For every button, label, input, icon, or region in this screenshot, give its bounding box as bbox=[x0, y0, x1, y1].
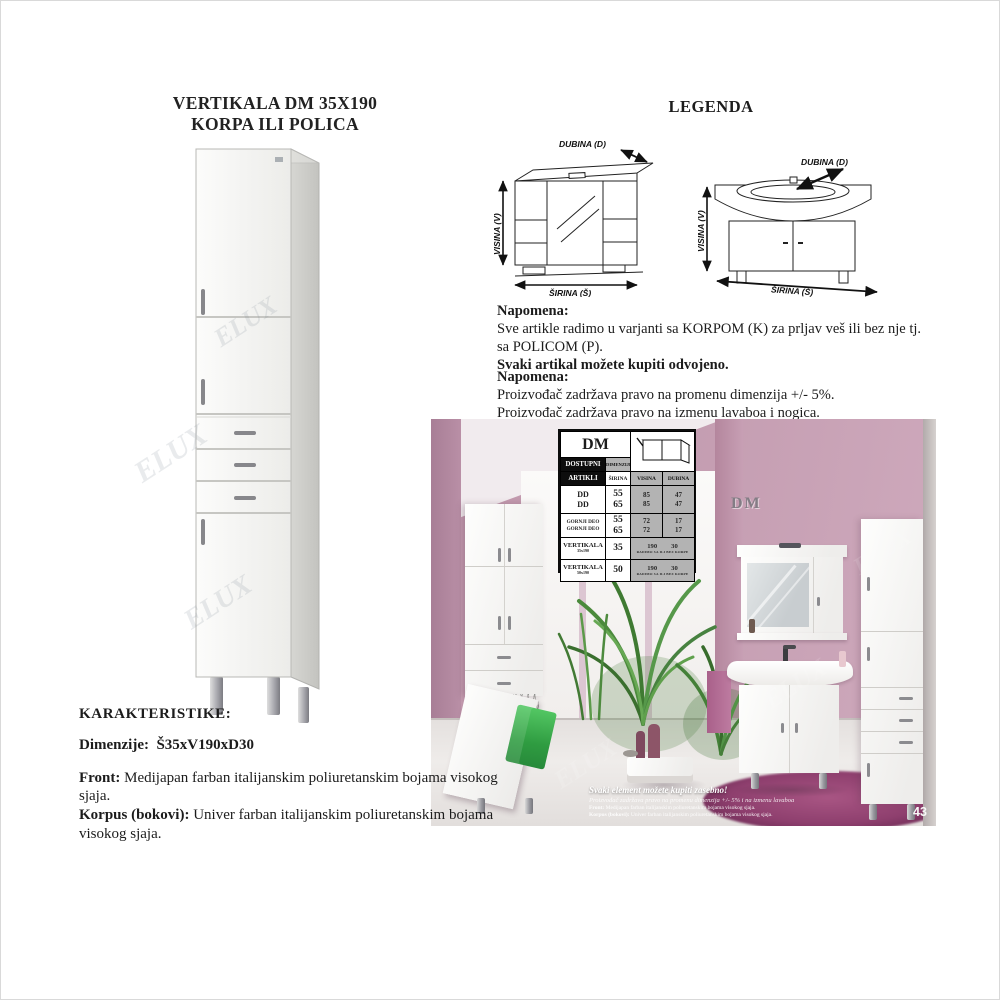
photo-mirror-cabinet bbox=[737, 541, 847, 645]
showroom-photo: DM bbox=[431, 419, 936, 826]
note-heading: Napomena: bbox=[497, 369, 927, 387]
table-title: DM bbox=[561, 432, 631, 458]
dm-dimension-table: DM DOSTUPNI bbox=[558, 429, 696, 573]
cabinet-leg bbox=[869, 804, 877, 820]
svg-text:VISINA (V): VISINA (V) bbox=[696, 210, 706, 252]
col-sirina: ŠIRINA bbox=[606, 472, 631, 486]
caption-sub: Proizvođač zadržava pravo na promenu dim… bbox=[589, 797, 839, 805]
table-row-vertikala: VERTIKALA50x190 50 19030 RADIMO SA ILI B… bbox=[561, 560, 695, 582]
tall-cabinet-drawing bbox=[151, 137, 381, 729]
bottle bbox=[749, 619, 755, 633]
cabinet-leg bbox=[525, 798, 533, 814]
characteristics-heading: KARAKTERISTIKE: bbox=[79, 705, 499, 724]
legend-vanity-diagram: VISINA (V) ŠIRINA (Š) DUBINA (D) bbox=[691, 145, 896, 297]
page-number: 43 bbox=[913, 805, 927, 819]
product-title-line2: KORPA ILI POLICA bbox=[119, 114, 431, 135]
svg-text:DUBINA (D): DUBINA (D) bbox=[801, 157, 848, 167]
photo-caption: Svaki element možete kupiti zasebno! Pro… bbox=[589, 785, 839, 819]
product-title: VERTIKALA DM 35X190 KORPA ILI POLICA bbox=[119, 93, 431, 136]
bowl bbox=[623, 750, 638, 757]
wall-logo: DM bbox=[731, 495, 762, 513]
product-title-line1: VERTIKALA DM 35X190 bbox=[119, 93, 431, 114]
col-dubina: DUBINA bbox=[663, 472, 695, 486]
note-line: Proizvođač zadržava pravo na promenu dim… bbox=[497, 387, 927, 405]
legend-mirror-diagram: VISINA (V) ŠIRINA (Š) DUBINA (D) bbox=[487, 123, 677, 297]
catalog-page: VERTIKALA DM 35X190 KORPA ILI POLICA bbox=[0, 0, 1000, 1000]
table-row: GORNJI DEOGORNJI DEO 5565 7272 1717 bbox=[561, 514, 695, 538]
sink-basin bbox=[727, 661, 853, 687]
legend-heading: LEGENDA bbox=[641, 97, 781, 117]
note-heading: Napomena: bbox=[497, 303, 927, 321]
note-line: sa POLICOM (P). bbox=[497, 339, 927, 357]
vase bbox=[648, 724, 660, 758]
photo-right-cabinet bbox=[859, 519, 927, 819]
note-line: Sve artikle radimo u varjanti sa KORPOM … bbox=[497, 321, 927, 339]
svg-text:VISINA (V): VISINA (V) bbox=[492, 213, 502, 255]
bench bbox=[627, 757, 693, 783]
col-available-2: ARTIKLI bbox=[561, 472, 606, 486]
table-row-vertikala: VERTIKALA35x190 35 19030 RADIMO SA ILI B… bbox=[561, 538, 695, 560]
soap-bottle bbox=[839, 651, 846, 667]
product-image: ELUX ELUX ELUX bbox=[151, 137, 381, 729]
col-visina: VISINA bbox=[631, 472, 663, 486]
col-available-1: DOSTUPNI bbox=[561, 458, 606, 472]
note-variants: Napomena: Sve artikle radimo u varjanti … bbox=[497, 303, 927, 375]
materials-text: Front: Medijapan farban italijanskim pol… bbox=[79, 769, 499, 844]
svg-text:ŠIRINA (Š): ŠIRINA (Š) bbox=[771, 283, 814, 297]
svg-text:DUBINA (D): DUBINA (D) bbox=[559, 139, 606, 149]
table-mini-diagram bbox=[631, 432, 695, 472]
svg-text:ŠIRINA (Š): ŠIRINA (Š) bbox=[549, 287, 591, 297]
caption-title: Svaki element možete kupiti zasebno! bbox=[589, 785, 839, 797]
characteristics: KARAKTERISTIKE: Dimenzije: Š35xV190xD30 … bbox=[79, 705, 499, 844]
dimensions-line: Dimenzije: Š35xV190xD30 bbox=[79, 736, 499, 755]
photo-sink-vanity bbox=[727, 643, 853, 795]
table-row: DDDD 5565 8585 4747 bbox=[561, 486, 695, 514]
note-disclaimer: Napomena: Proizvođač zadržava pravo na p… bbox=[497, 369, 927, 423]
col-dimensions: DIMENZIJE bbox=[606, 458, 631, 472]
caption-korpus: Korpus (bokovi): Univer farban italijans… bbox=[589, 812, 839, 819]
